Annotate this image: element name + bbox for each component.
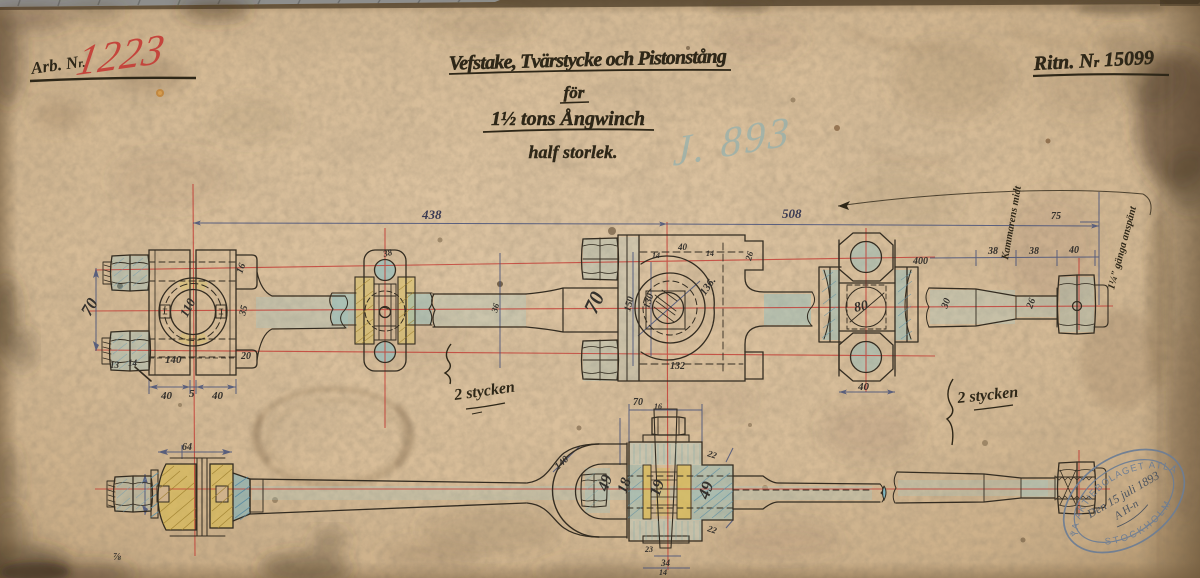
svg-text:för: för (564, 83, 585, 102)
svg-text:23: 23 (644, 545, 653, 554)
svg-text:438: 438 (421, 207, 442, 222)
svg-text:400: 400 (912, 256, 928, 267)
svg-text:140: 140 (165, 354, 182, 366)
svg-text:64: 64 (182, 442, 192, 453)
svg-text:38: 38 (1028, 246, 1039, 257)
svg-text:132: 132 (670, 361, 685, 372)
svg-text:5: 5 (189, 388, 195, 400)
svg-text:40: 40 (857, 381, 870, 393)
svg-text:half storlek.: half storlek. (528, 142, 617, 162)
svg-text:⅞: ⅞ (113, 551, 121, 563)
svg-text:16: 16 (654, 402, 662, 411)
svg-text:14: 14 (652, 251, 660, 260)
svg-text:40: 40 (211, 390, 224, 402)
svg-text:40: 40 (1068, 245, 1079, 256)
svg-text:40: 40 (677, 242, 688, 252)
svg-text:14: 14 (128, 358, 138, 368)
svg-text:14: 14 (706, 249, 714, 258)
svg-text:20: 20 (240, 351, 251, 362)
svg-text:40: 40 (160, 390, 173, 402)
svg-text:38: 38 (987, 246, 998, 257)
svg-text:14: 14 (659, 568, 667, 577)
svg-text:508: 508 (782, 206, 802, 221)
svg-text:1½ tons Ångwinch: 1½ tons Ångwinch (491, 108, 645, 130)
svg-text:13: 13 (110, 360, 120, 370)
svg-text:75: 75 (1051, 211, 1061, 222)
svg-text:70: 70 (633, 397, 643, 408)
svg-text:34: 34 (660, 558, 671, 568)
